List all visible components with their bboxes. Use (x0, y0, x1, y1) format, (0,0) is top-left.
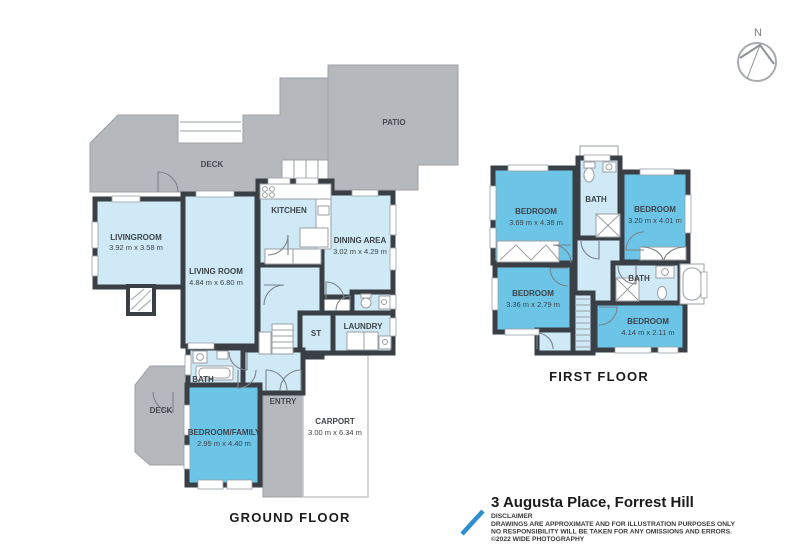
compass-north-label: N (754, 27, 762, 39)
carport-label: CARPORT (315, 417, 355, 426)
title-block: 3 Augusta Place, Forrest Hill DISCLAIMER… (462, 494, 736, 543)
compass: N (738, 27, 776, 81)
first-floor-title: FIRST FLOOR (549, 369, 649, 384)
bedroom-tl-dims: 3.69 m x 4.38 m (509, 218, 563, 227)
deck-lower-label: DECK (150, 406, 173, 415)
patio-label: PATIO (382, 118, 405, 127)
dining-dims: 3.02 m x 4.29 m (333, 247, 387, 256)
laundry-label: LAUNDRY (344, 322, 383, 331)
deck-top-label: DECK (201, 160, 224, 169)
floorplan-drawing: DECK PATIO DECK ENTRY LIVINGROOM 3.92 m … (0, 0, 800, 560)
bedroom-tr-label: BEDROOM (634, 205, 676, 214)
brand-slash-icon (462, 511, 483, 534)
bedroom-family-label: BEDROOM/FAMILY (188, 428, 261, 437)
living-room-label: LIVING ROOM (189, 267, 243, 276)
dining-label: DINING AREA (334, 236, 387, 245)
st-label: ST (311, 329, 321, 338)
room-dining-area (322, 193, 393, 297)
livingroom-dims: 3.92 m x 3.58 m (109, 243, 163, 252)
bedroom-family-dims: 2.95 m x 4.40 m (197, 439, 251, 448)
bedroom-tr-dims: 3.20 m x 4.01 m (628, 216, 682, 225)
deck-lower-area (135, 366, 188, 465)
bedroom-br-dims: 4.14 m x 2.11 m (621, 328, 674, 337)
bedroom-top-right-closet (640, 247, 686, 260)
ground-stairs (272, 324, 293, 354)
floorplan-page: DECK PATIO DECK ENTRY LIVINGROOM 3.92 m … (0, 0, 800, 560)
ground-floor-plan: DECK PATIO DECK ENTRY LIVINGROOM 3.92 m … (90, 65, 458, 525)
bedroom-ml-label: BEDROOM (512, 289, 554, 298)
room-bedroom-mid-left (495, 265, 572, 332)
disclaimer-line2: NO RESPONSIBILITY WILL BE TAKEN FOR ANY … (491, 529, 732, 536)
ground-floor-title: GROUND FLOOR (229, 510, 350, 525)
kitchen-label: KITCHEN (271, 206, 307, 215)
disclaimer-line1: DRAWINGS ARE APPROXIMATE AND FOR ILLUSTR… (491, 521, 736, 528)
entry-area (263, 393, 303, 497)
bath-right-label: BATH (628, 274, 650, 283)
disclaimer-heading: DISCLAIMER (491, 513, 533, 520)
compass-circle (738, 43, 776, 81)
bed-icon (497, 241, 559, 262)
fireplace-nook (128, 286, 154, 314)
disclaimer-line3: ©2022 WIDE PHOTOGRAPHY (491, 535, 585, 543)
patio-area (328, 65, 458, 190)
carport-area (303, 355, 368, 497)
first-floor-plan: BEDROOM 3.69 m x 4.38 m BATH BEDROOM 3.2… (490, 146, 707, 384)
carport-dims: 3.00 m x 6.34 m (308, 428, 362, 437)
bedroom-ml-dims: 3.36 m x 2.79 m (506, 300, 560, 309)
bath-top-label: BATH (585, 195, 607, 204)
bath-top-bay (580, 146, 618, 156)
room-bedroom-bottom-right (595, 303, 685, 350)
page-title: 3 Augusta Place, Forrest Hill (491, 494, 694, 511)
bath-ground-label: BATH (192, 375, 214, 384)
living-room-dims: 4.84 m x 6.80 m (189, 278, 243, 287)
bedroom-tl-label: BEDROOM (515, 207, 557, 216)
entry-label: ENTRY (270, 397, 297, 406)
livingroom-label: LIVINGROOM (110, 233, 162, 242)
bedroom-br-label: BEDROOM (627, 317, 669, 326)
